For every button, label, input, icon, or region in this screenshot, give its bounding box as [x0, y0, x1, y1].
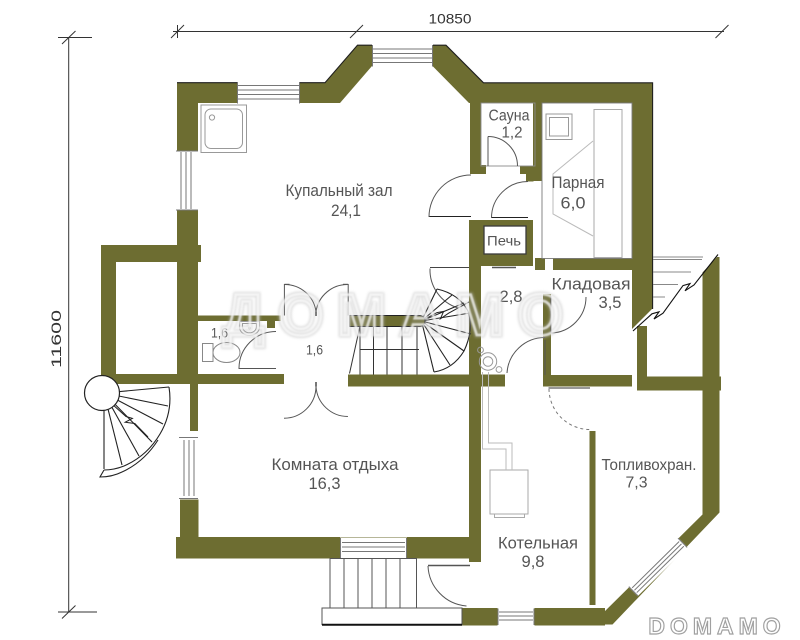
svg-text:Сауна: Сауна [489, 108, 530, 125]
svg-text:Купальный зал: Купальный зал [286, 182, 393, 200]
svg-text:9,8: 9,8 [522, 553, 545, 571]
svg-text:Печь: Печь [487, 233, 521, 249]
svg-text:Парная: Парная [552, 174, 605, 192]
svg-text:1,2: 1,2 [502, 125, 523, 142]
svg-text:Топливохран.: Топливохран. [602, 457, 697, 474]
svg-text:Котельная: Котельная [498, 535, 578, 553]
svg-text:16,3: 16,3 [309, 474, 341, 493]
svg-text:7,3: 7,3 [626, 475, 648, 492]
svg-text:10850: 10850 [429, 11, 472, 27]
svg-text:Комната отдыха: Комната отдыха [272, 455, 400, 474]
svg-text:24,1: 24,1 [331, 202, 361, 220]
svg-text:11600: 11600 [48, 310, 64, 368]
svg-text:6,0: 6,0 [561, 195, 586, 213]
svg-text:3,5: 3,5 [599, 294, 622, 312]
